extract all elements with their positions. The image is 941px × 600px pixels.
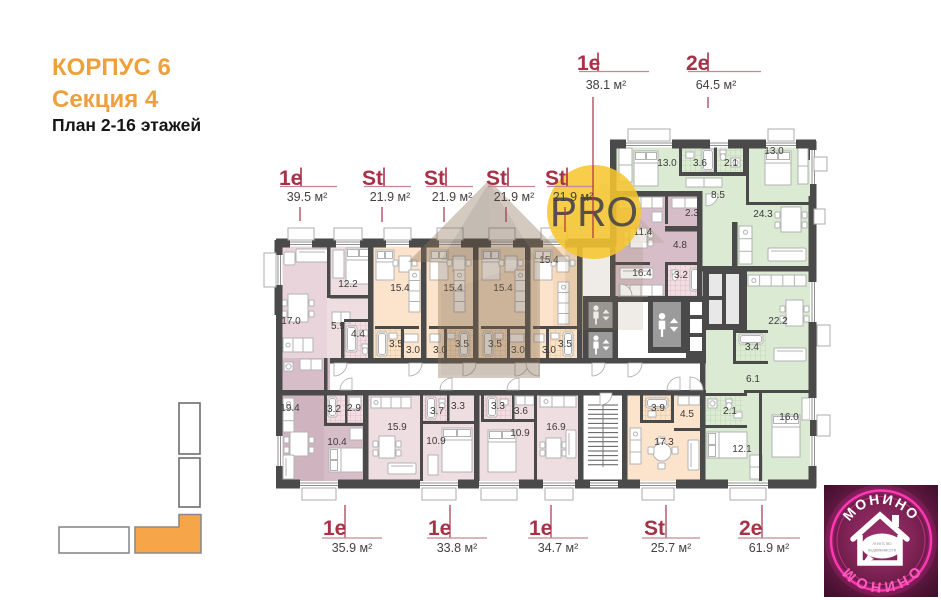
svg-text:2.9: 2.9 — [347, 403, 361, 414]
svg-text:4.4: 4.4 — [351, 329, 365, 340]
svg-text:15.9: 15.9 — [387, 422, 407, 433]
svg-text:3.7: 3.7 — [430, 406, 444, 417]
svg-text:3.5: 3.5 — [558, 339, 572, 350]
svg-text:1e: 1e — [323, 517, 346, 540]
svg-text:2.1: 2.1 — [723, 406, 737, 417]
svg-text:10.9: 10.9 — [426, 436, 446, 447]
svg-text:3.0: 3.0 — [542, 345, 556, 356]
svg-text:3.3: 3.3 — [491, 401, 505, 412]
svg-text:21.9 м²: 21.9 м² — [432, 190, 473, 204]
svg-text:3.0: 3.0 — [406, 345, 420, 356]
svg-text:План 2-16 этажей: План 2-16 этажей — [52, 115, 201, 135]
svg-text:8.5: 8.5 — [711, 190, 725, 201]
svg-text:22.2: 22.2 — [768, 316, 788, 327]
svg-text:St: St — [644, 517, 665, 540]
svg-text:5.9: 5.9 — [331, 321, 345, 332]
svg-text:21.9 м²: 21.9 м² — [370, 190, 411, 204]
svg-text:4.8: 4.8 — [673, 240, 687, 251]
svg-text:61.9 м²: 61.9 м² — [749, 541, 790, 555]
svg-text:16.0: 16.0 — [779, 412, 799, 423]
svg-text:3.6: 3.6 — [514, 406, 528, 417]
svg-text:21.9 м²: 21.9 м² — [494, 190, 535, 204]
svg-text:64.5 м²: 64.5 м² — [696, 78, 737, 92]
svg-text:19.4: 19.4 — [280, 403, 300, 414]
svg-text:38.1 м²: 38.1 м² — [586, 78, 627, 92]
svg-text:10.9: 10.9 — [510, 428, 530, 439]
svg-text:3.3: 3.3 — [451, 401, 465, 412]
svg-text:17.0: 17.0 — [281, 316, 301, 327]
svg-text:КОРПУС 6: КОРПУС 6 — [52, 54, 171, 81]
svg-text:25.7 м²: 25.7 м² — [651, 541, 692, 555]
svg-text:33.8 м²: 33.8 м² — [437, 541, 478, 555]
svg-text:15.4: 15.4 — [390, 283, 410, 294]
svg-text:17.3: 17.3 — [654, 437, 674, 448]
svg-text:12.2: 12.2 — [338, 279, 358, 290]
svg-text:1e: 1e — [529, 517, 552, 540]
svg-text:2.3: 2.3 — [685, 208, 699, 219]
svg-text:34.7 м²: 34.7 м² — [538, 541, 579, 555]
svg-text:6.1: 6.1 — [746, 374, 760, 385]
svg-text:21.9 м²: 21.9 м² — [553, 190, 594, 204]
svg-text:недвижимости: недвижимости — [868, 548, 897, 553]
svg-text:Секция 4: Секция 4 — [52, 86, 159, 113]
svg-text:13.0: 13.0 — [657, 158, 677, 169]
svg-text:2e: 2e — [739, 517, 762, 540]
svg-text:3.6: 3.6 — [693, 158, 707, 169]
svg-text:3.2: 3.2 — [327, 404, 341, 415]
svg-text:39.5 м²: 39.5 м² — [287, 190, 328, 204]
svg-text:3.2: 3.2 — [674, 270, 688, 281]
svg-text:3.4: 3.4 — [745, 342, 759, 353]
svg-text:13.0: 13.0 — [764, 146, 784, 157]
svg-text:Агентство: Агентство — [872, 541, 892, 546]
svg-text:4.5: 4.5 — [680, 409, 694, 420]
svg-text:12.1: 12.1 — [732, 444, 752, 455]
svg-text:1e: 1e — [428, 517, 451, 540]
svg-text:24.3: 24.3 — [753, 209, 773, 220]
svg-text:10.4: 10.4 — [327, 437, 347, 448]
svg-text:2.1: 2.1 — [724, 158, 738, 169]
svg-text:3.5: 3.5 — [389, 339, 403, 350]
svg-text:35.9 м²: 35.9 м² — [332, 541, 373, 555]
svg-text:3.9: 3.9 — [651, 403, 665, 414]
svg-text:16.9: 16.9 — [546, 422, 566, 433]
